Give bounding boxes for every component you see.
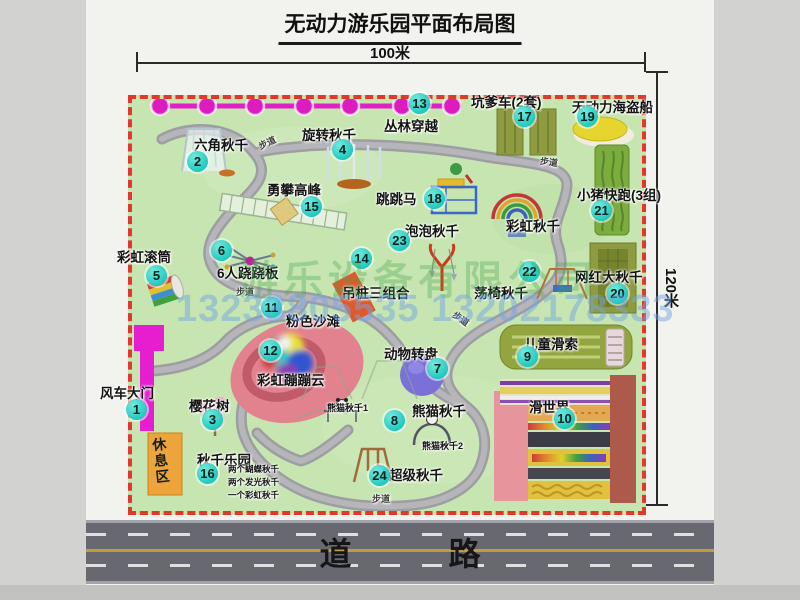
cherry-tree-icon (199, 397, 228, 436)
page-title: 无动力游乐园平面布局图 (279, 8, 522, 45)
road: 道 路 (86, 520, 714, 584)
animal-turntable-icon (400, 354, 444, 396)
slide-world-icon (494, 375, 636, 503)
bottom-gray-strip (0, 585, 800, 600)
dimension-tick-top (646, 71, 668, 73)
layout-poster: 无动力游乐园平面布局图 100米 120米 (0, 0, 800, 600)
pirate-ship-icon (573, 117, 634, 147)
kids-zipline-icon (500, 325, 632, 369)
jumping-horse-icon (432, 163, 476, 213)
pit-car-strips-icon (497, 109, 556, 155)
dimension-tick-right (644, 52, 646, 72)
windmill-gate-icon (134, 325, 164, 431)
piggy-run-strip-icon (595, 145, 629, 235)
watermark-phone: 13233805535 13202178333 (176, 288, 675, 331)
road-label: 道 路 (86, 523, 714, 581)
dimension-tick-bottom (646, 504, 668, 506)
jungle-crossing-chain (151, 99, 462, 115)
dimension-tick-left (136, 52, 138, 72)
dimension-label-width: 100米 (370, 42, 410, 63)
